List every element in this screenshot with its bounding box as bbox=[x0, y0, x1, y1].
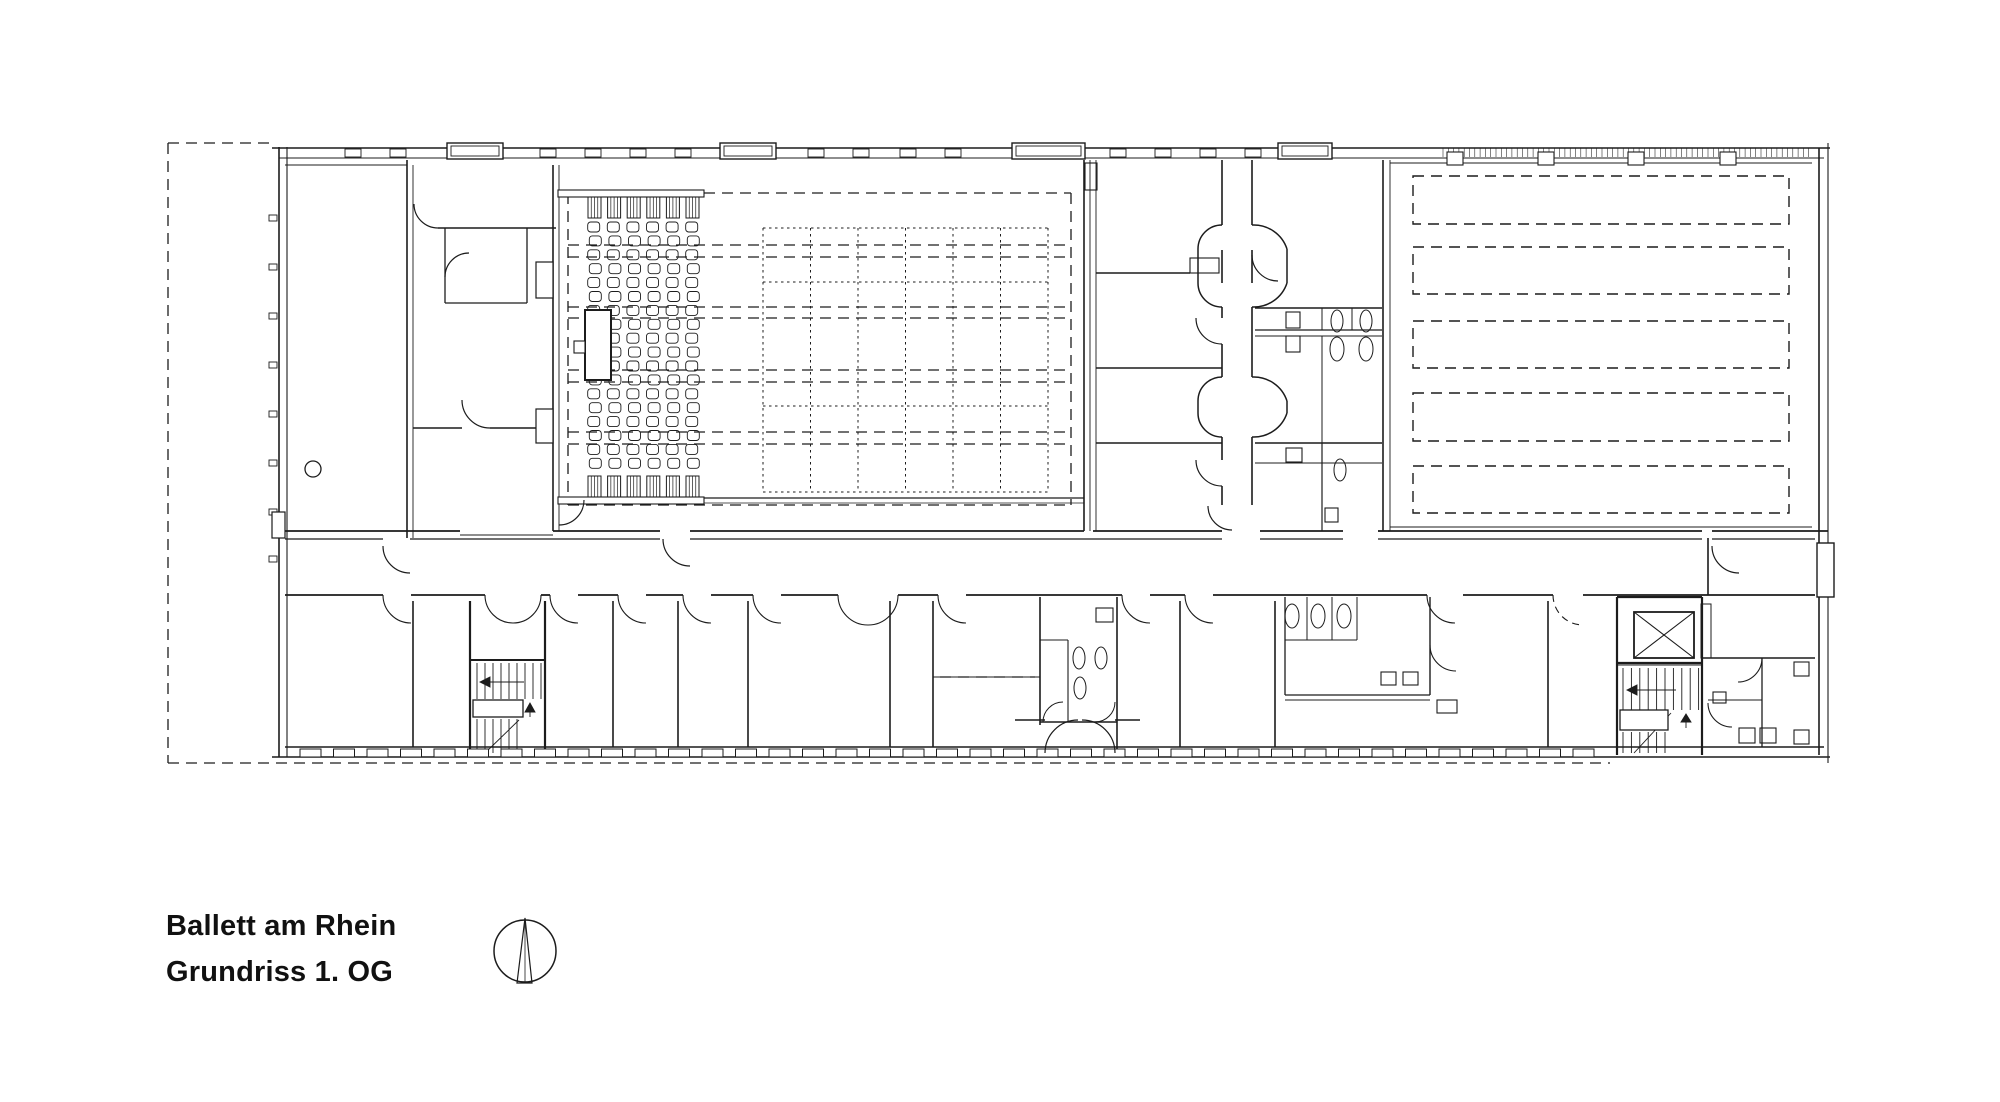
project-title: Ballett am Rhein bbox=[166, 903, 396, 949]
sheet-title: Grundriss 1. OG bbox=[166, 949, 396, 995]
north-arrow-icon-layer bbox=[494, 918, 556, 983]
stair-treads-layer bbox=[477, 148, 1809, 753]
fixtures-layer bbox=[269, 143, 1834, 744]
walls-layer bbox=[272, 143, 1830, 763]
drawing-title-block: Ballett am Rhein Grundriss 1. OG bbox=[166, 903, 396, 995]
doors-layer bbox=[383, 204, 1762, 753]
dashed-zones-layer bbox=[1413, 176, 1789, 513]
dotted-grid-layer bbox=[763, 228, 1048, 492]
dashed-markings-layer bbox=[168, 143, 1610, 763]
window-sills-layer bbox=[300, 749, 1594, 757]
floor-plan-sheet: Ballett am Rhein Grundriss 1. OG bbox=[0, 0, 2000, 1102]
